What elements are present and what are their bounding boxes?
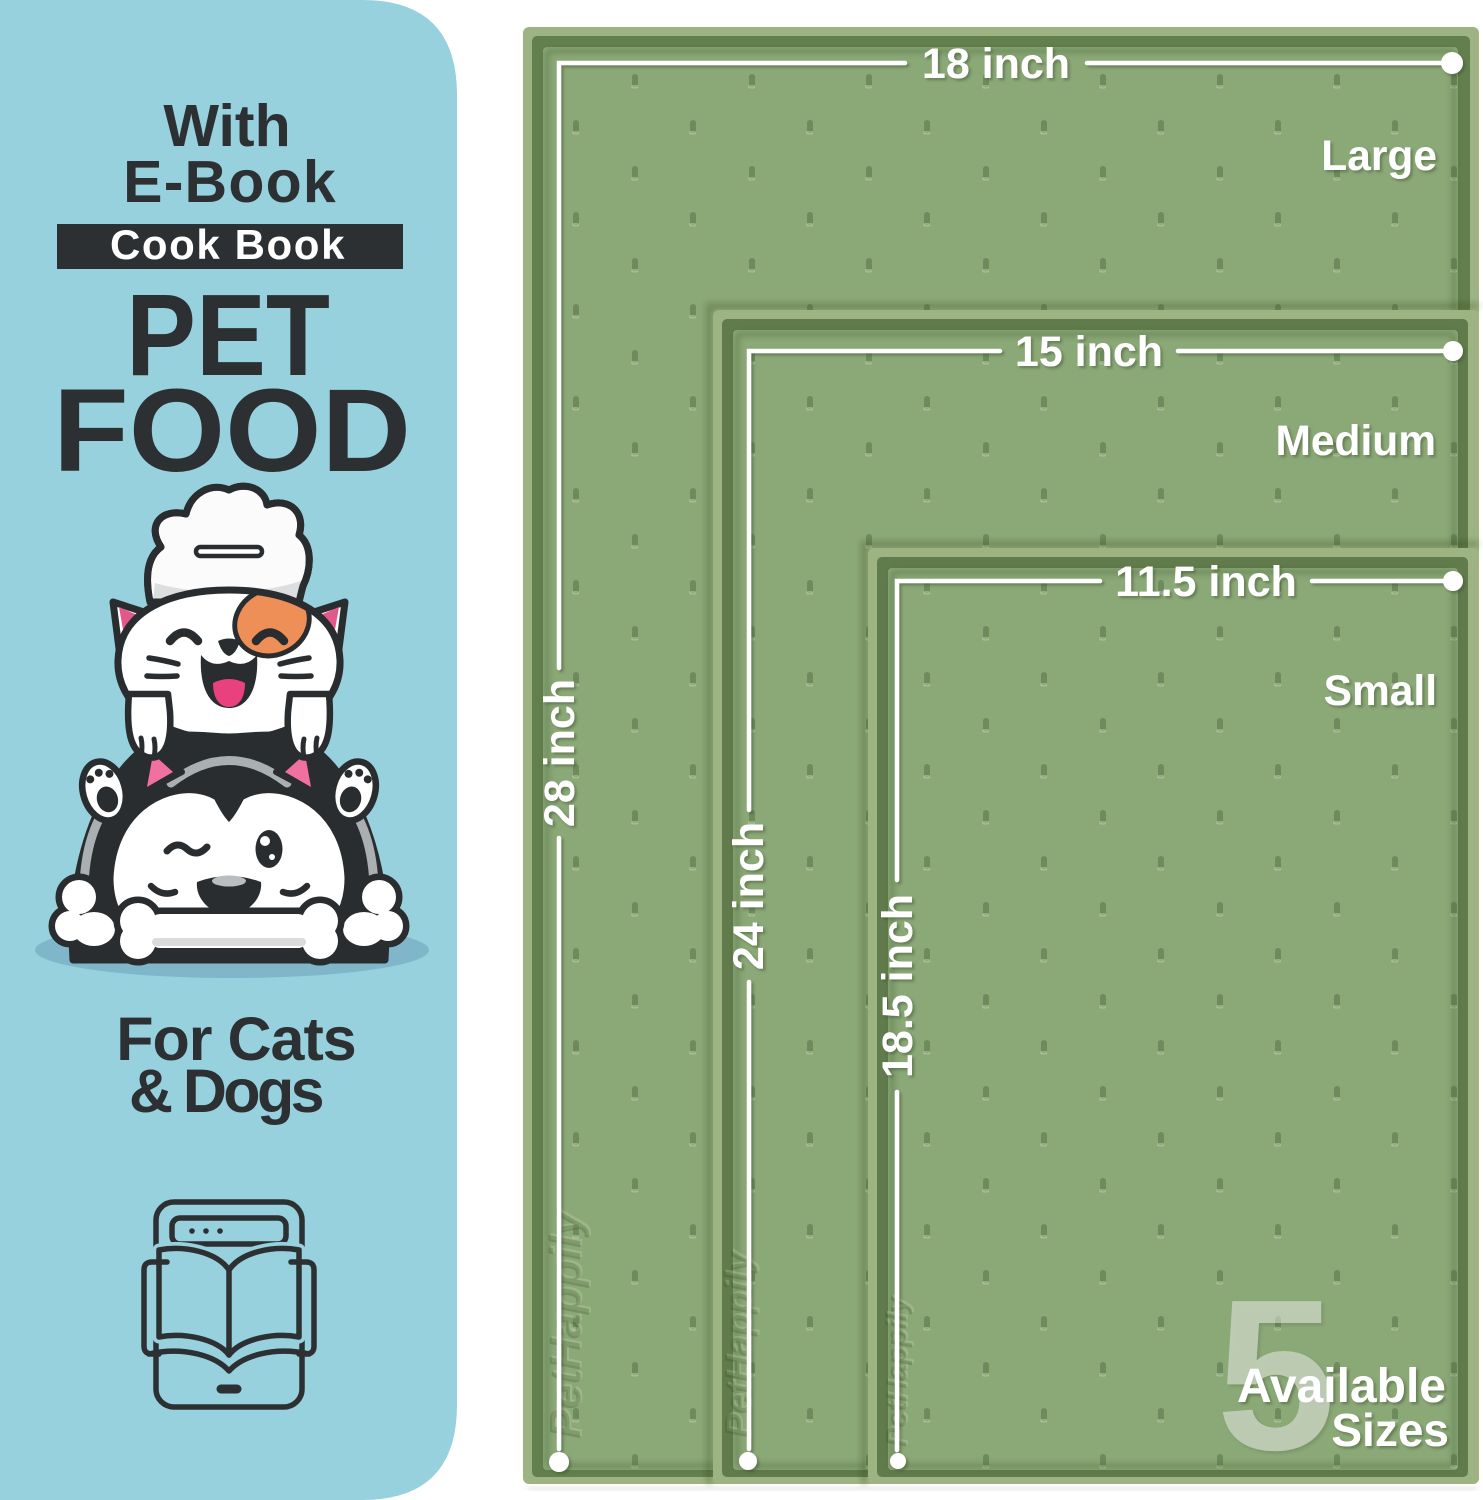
svg-text:PetHappily: PetHappily (541, 1209, 590, 1439)
svg-text:18 inch: 18 inch (922, 40, 1070, 88)
svg-text:Sizes: Sizes (1331, 1404, 1449, 1456)
svg-text:24 inch: 24 inch (725, 822, 773, 970)
svg-text:Medium: Medium (1275, 418, 1436, 465)
svg-text:15 inch: 15 inch (1015, 328, 1163, 376)
svg-text:E-Book: E-Book (123, 149, 337, 215)
svg-text:Small: Small (1324, 668, 1437, 715)
svg-text:& Dogs: & Dogs (129, 1057, 323, 1125)
svg-text:Large: Large (1321, 133, 1437, 180)
svg-text:Cook Book: Cook Book (110, 221, 346, 268)
svg-text:FOOD: FOOD (53, 365, 411, 497)
svg-text:11.5 inch: 11.5 inch (1115, 558, 1297, 606)
svg-text:28 inch: 28 inch (536, 679, 584, 827)
svg-text:PetHappily: PetHappily (717, 1250, 758, 1438)
svg-text:18.5 inch: 18.5 inch (874, 894, 922, 1078)
